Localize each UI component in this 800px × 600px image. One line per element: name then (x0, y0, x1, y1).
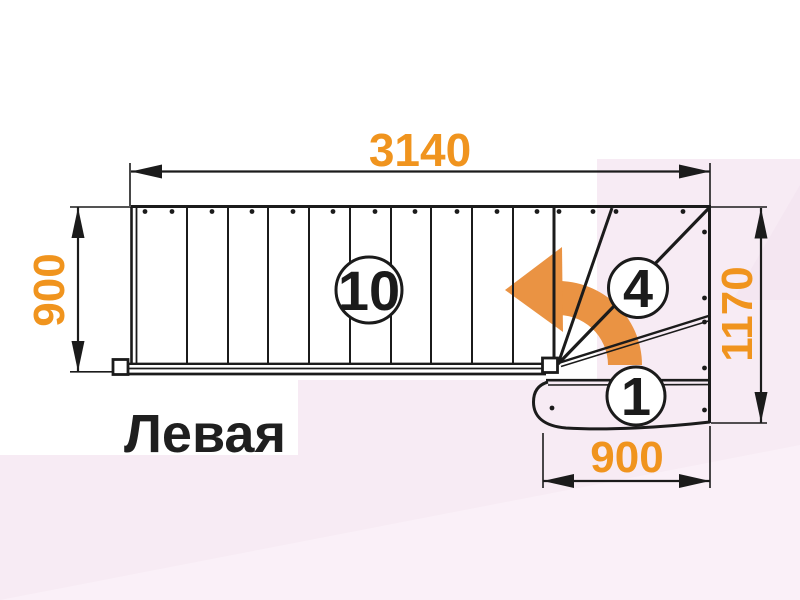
diagram-title: Левая (124, 404, 286, 464)
left-width-value: 900 (25, 253, 74, 326)
step-count-balloon-winders: 4 (609, 259, 668, 320)
step-count-balloon-straight: 10 (336, 257, 402, 323)
straight-step-count-label: 10 (338, 259, 400, 322)
step-count-balloon-first-step: 1 (607, 367, 665, 427)
dimension-arrow-left (131, 165, 162, 179)
screw-dot (702, 366, 707, 371)
screw-dot (143, 209, 148, 214)
top-length-value: 3140 (369, 124, 471, 176)
bottom-width-value: 900 (590, 433, 663, 482)
screw-dot (550, 406, 555, 411)
stair-plan-diagram: 10 4 1 3140 900 1170 (0, 0, 800, 600)
dimension-arrow-up (72, 208, 85, 239)
newel-post-pivot (543, 358, 558, 373)
screw-dot (702, 408, 707, 413)
screw-dot (331, 209, 336, 214)
stringer-board (128, 364, 546, 374)
newel-post-left (113, 360, 128, 375)
stair-plan-canvas: 10 4 1 3140 900 1170 (0, 0, 800, 600)
screw-dot (413, 209, 418, 214)
screw-dot (591, 209, 596, 214)
screw-dot (702, 230, 707, 235)
screw-dot (614, 209, 619, 214)
screw-dot (455, 209, 460, 214)
dimension-left: 900 (25, 207, 131, 372)
screw-dot (170, 209, 175, 214)
screw-dot (210, 209, 215, 214)
screw-dot (373, 209, 378, 214)
dimension-arrow-down (72, 341, 85, 372)
winder-step-count-label: 4 (623, 259, 653, 319)
screw-dot (495, 209, 500, 214)
screw-dot (535, 209, 540, 214)
screw-dot (702, 296, 707, 301)
screw-dot (702, 320, 707, 325)
screw-dot (681, 209, 686, 214)
first-step-number-label: 1 (621, 367, 651, 427)
right-height-value: 1170 (713, 266, 762, 361)
screw-dot (557, 209, 562, 214)
screw-dot (291, 209, 296, 214)
screw-dot (250, 209, 255, 214)
